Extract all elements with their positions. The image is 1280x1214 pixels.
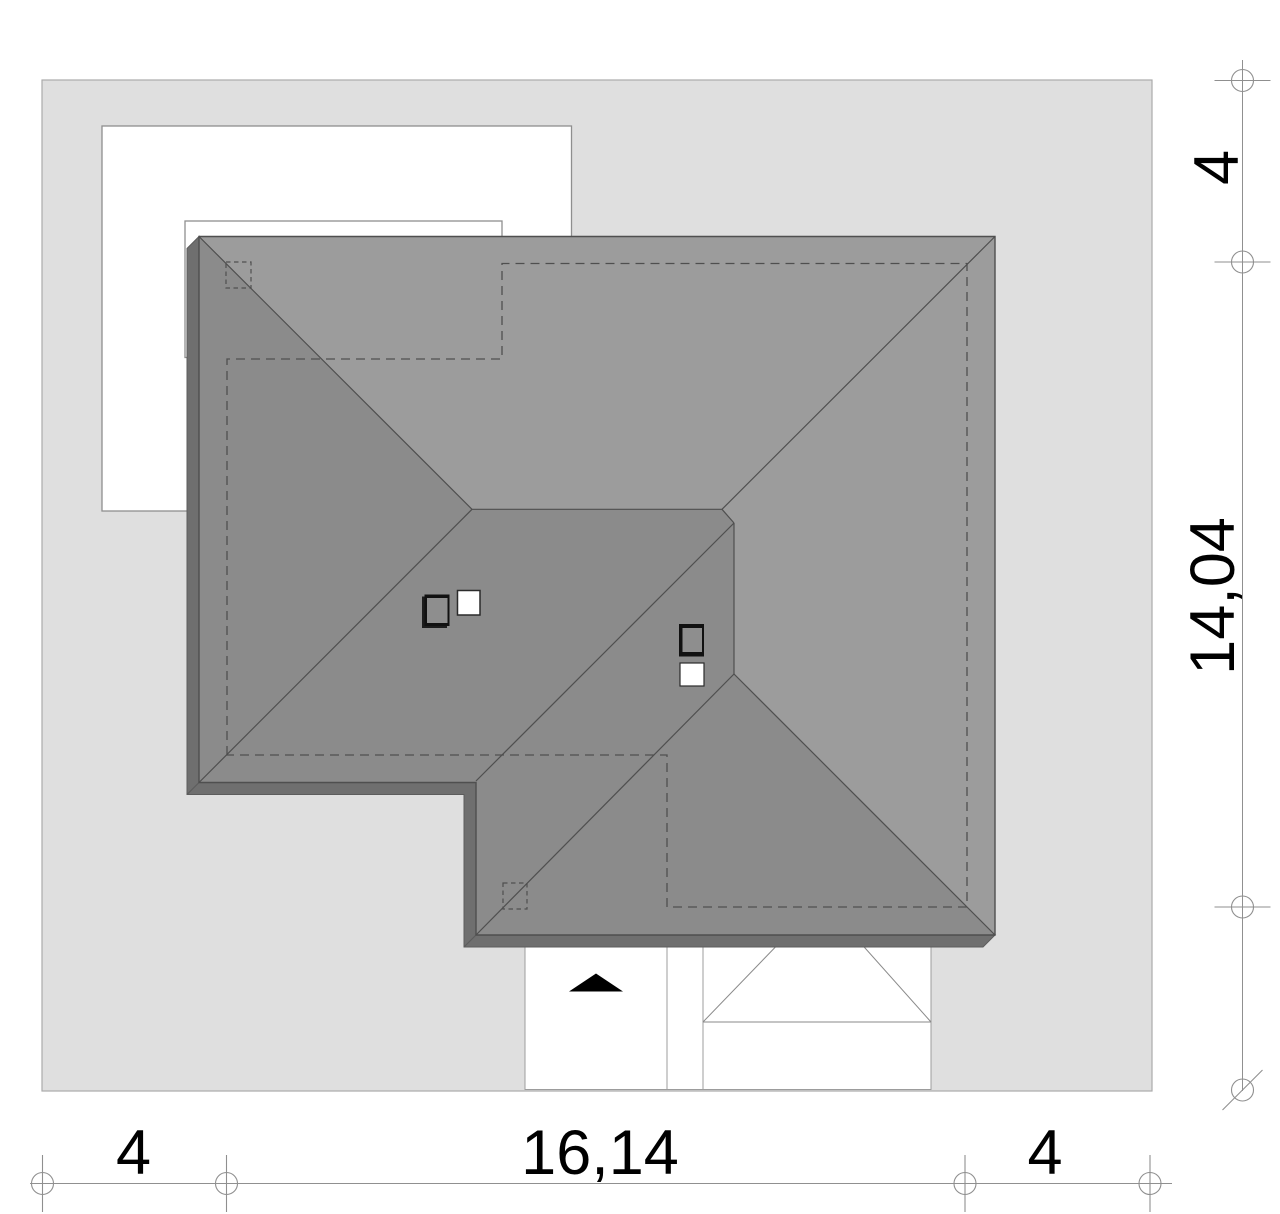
svg-text:16,14: 16,14 <box>521 1118 679 1188</box>
svg-text:4: 4 <box>1027 1118 1062 1188</box>
svg-text:4: 4 <box>116 1118 151 1188</box>
svg-text:14,04: 14,04 <box>1178 517 1248 675</box>
svg-text:4: 4 <box>1182 150 1252 185</box>
